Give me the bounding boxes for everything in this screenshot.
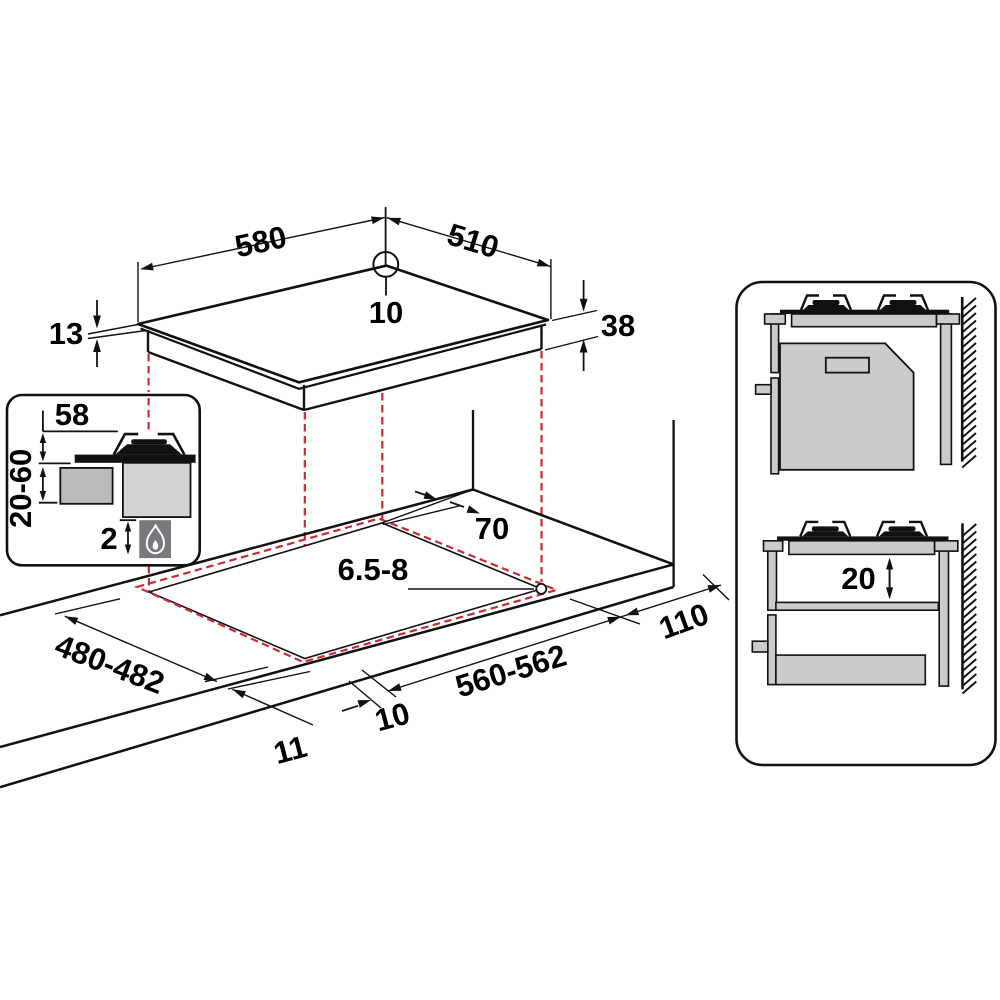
svg-text:2: 2 [100, 521, 117, 556]
svg-text:38: 38 [601, 308, 635, 343]
svg-text:20: 20 [841, 561, 875, 596]
svg-text:10: 10 [369, 295, 403, 330]
svg-text:6.5-8: 6.5-8 [338, 552, 409, 587]
svg-text:20-60: 20-60 [3, 449, 38, 528]
svg-text:70: 70 [475, 511, 509, 546]
svg-text:58: 58 [55, 397, 89, 432]
svg-text:13: 13 [49, 316, 83, 351]
